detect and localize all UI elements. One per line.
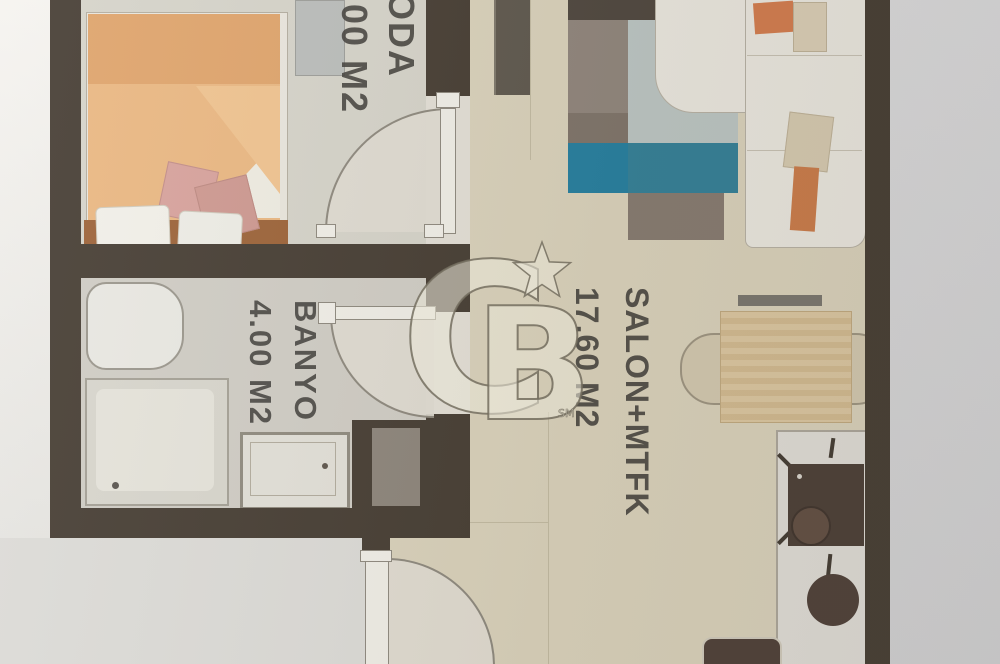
room-name: ODA: [378, 0, 425, 152]
rug-block: [568, 20, 628, 113]
kitchen-sink: [807, 574, 859, 626]
sofa-chaise: [655, 0, 759, 113]
watermark-letter-b: B: [474, 274, 593, 456]
tile-seam: [530, 0, 531, 160]
rug-block: [628, 193, 724, 240]
rug-block: [568, 143, 628, 193]
rug-block: [568, 0, 665, 20]
room-label-bathroom: BANYO 4.00 M2: [238, 300, 328, 440]
sofa-cushion-beige: [793, 2, 827, 52]
shower-drain: [112, 482, 119, 489]
room-name: SALON+MTFK: [612, 287, 662, 577]
wall-bathroom-bottom: [50, 508, 365, 538]
entry-door-leaf: [365, 557, 389, 664]
sofa-seam: [747, 55, 862, 56]
bathroom-sink-basin: [250, 442, 336, 496]
wall-hall-stub-top: [426, 0, 470, 96]
cb-watermark: C B SM: [400, 235, 600, 435]
wall-right: [865, 0, 890, 664]
bedroom-door-jamb: [436, 92, 460, 108]
bed-blanket-header: [88, 14, 280, 86]
toilet: [86, 282, 184, 370]
room-area: 4.00 M2: [238, 300, 283, 440]
dining-table: [720, 311, 852, 423]
floorplan-photo: ODA .00 M2 BANYO 4.00 M2 SALON+MTFK 17.6…: [0, 0, 1000, 664]
bedroom-door-leaf: [440, 108, 456, 234]
watermark-trademark: SM: [558, 407, 574, 420]
cooktop-dot: [797, 474, 802, 479]
sofa-cushion-beige: [783, 111, 834, 172]
wall-console: [738, 295, 822, 306]
paper-margin-right: [890, 0, 1000, 664]
room-label-bedroom: ODA .00 M2: [331, 0, 425, 152]
sofa-cushion-orange: [790, 166, 819, 232]
bedroom-door-stop: [316, 224, 336, 238]
sink-faucet-dot: [322, 463, 328, 469]
cooktop-burner: [791, 506, 831, 546]
sofa-cushion-orange: [753, 1, 795, 35]
kitchen-stool: [702, 637, 782, 664]
outside-bottom-area: [0, 538, 365, 664]
tile-seam: [462, 522, 548, 523]
hall-cabinet: [494, 0, 530, 95]
room-name: BANYO: [283, 300, 328, 440]
entry-door-jamb: [360, 550, 392, 562]
shower-tray-inner: [96, 389, 214, 491]
room-area: .00 M2: [331, 0, 378, 152]
